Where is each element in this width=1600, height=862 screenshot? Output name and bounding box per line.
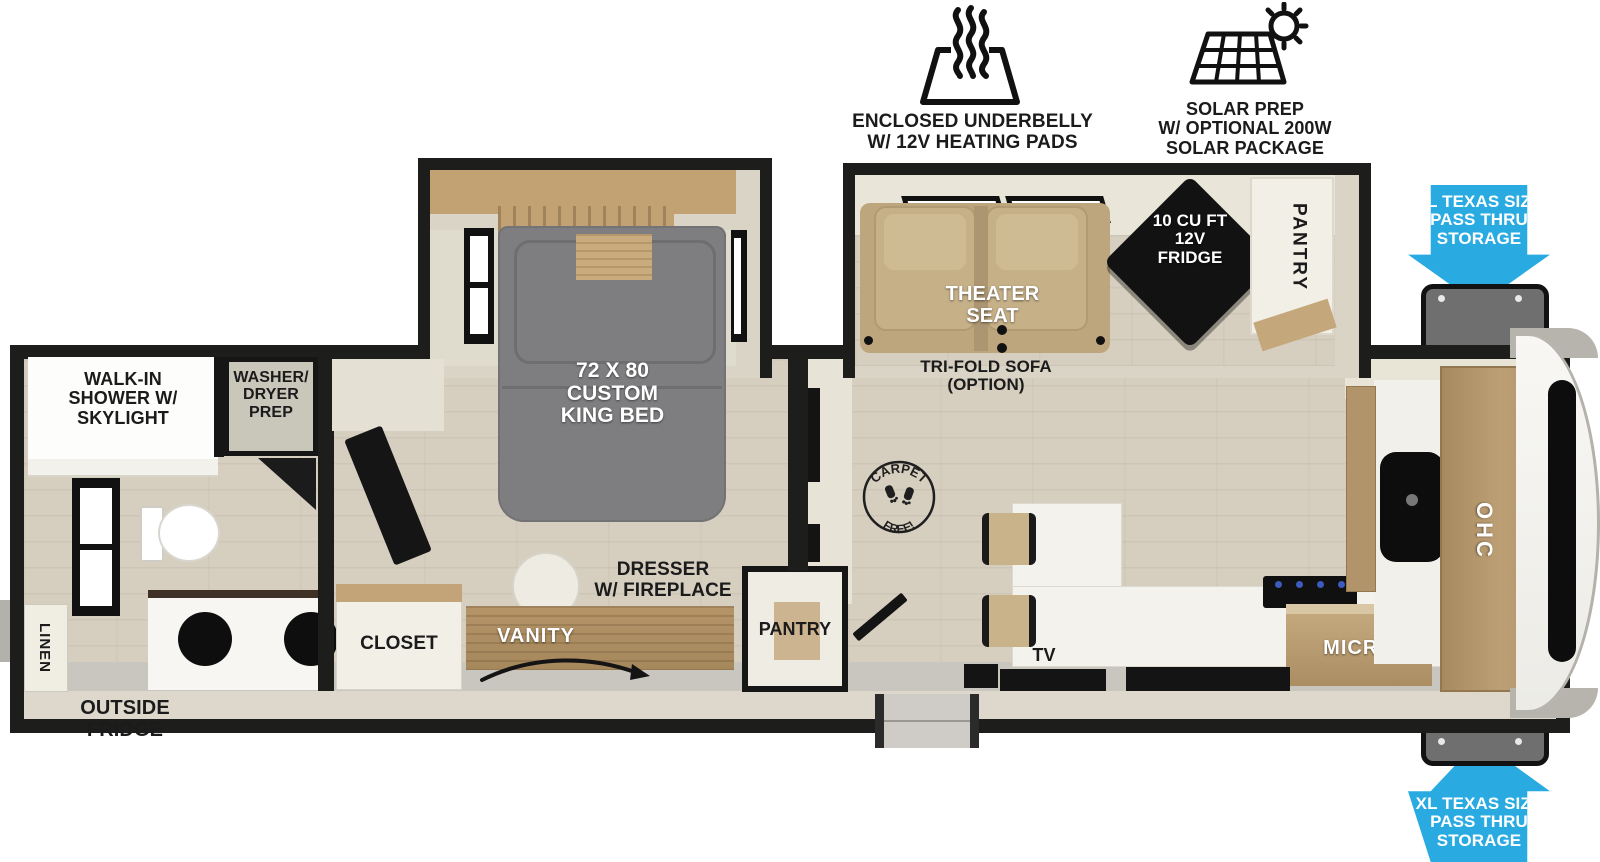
- storage-bottom-line3: STORAGE: [1408, 832, 1550, 850]
- carpet-badge-top-text: CARPET: [867, 461, 930, 486]
- front-cap-window: [1548, 380, 1576, 662]
- bed-label-line3: KING BED: [520, 405, 705, 428]
- hall-pantry-label: PANTRY: [748, 620, 842, 639]
- bedroom-window-right: [731, 230, 747, 342]
- heat-waves-icon: [905, 4, 1035, 108]
- footprints-icon: [884, 484, 916, 506]
- bottom-wall-window-1: [1000, 669, 1106, 691]
- storage-top-line2: PASS THRU: [1408, 211, 1550, 229]
- wall-mounted-tv: [808, 388, 820, 482]
- toilet-bowl: [158, 504, 220, 562]
- bed-blanket: [576, 234, 652, 280]
- shower-washer-divider-wall: [214, 357, 224, 457]
- king-bed-label: 72 X 80 CUSTOM KING BED: [520, 360, 705, 428]
- kitchen-sink: [1380, 452, 1444, 562]
- storage-top-line3: STORAGE: [1408, 230, 1550, 248]
- vanity-label: VANITY: [476, 626, 596, 648]
- storage-bottom-line2: PASS THRU: [1408, 813, 1550, 831]
- svg-text:FREE!: FREE!: [881, 518, 918, 536]
- sofa-label-line1: TRI-FOLD SOFA: [896, 358, 1076, 376]
- dresser-fireplace-label: DRESSER W/ FIREPLACE: [568, 560, 758, 601]
- bed-label-line1: 72 X 80: [520, 360, 705, 383]
- closet: CLOSET: [336, 584, 462, 690]
- theater-seat-label: THEATER SEAT: [900, 284, 1085, 327]
- underbelly-caption-line1: ENCLOSED UNDERBELLY: [845, 112, 1100, 133]
- theater-label-line1: THEATER: [900, 284, 1085, 306]
- solar-caption-line3: SOLAR PACKAGE: [1140, 139, 1350, 158]
- ohc-label: OHC: [1472, 466, 1496, 596]
- sofa-option-label: TRI-FOLD SOFA (OPTION): [896, 358, 1076, 395]
- hall-pantry: PANTRY: [742, 566, 848, 692]
- underbelly-caption-line2: W/ 12V HEATING PADS: [845, 133, 1100, 154]
- slide-pantry-label: PANTRY: [1288, 192, 1309, 302]
- storage-top-line1: XL TEXAS SIZE: [1408, 193, 1550, 211]
- outside-fridge-line2: FRIDGE: [55, 720, 195, 742]
- washer-dryer-prep: WASHER/ DRYER PREP: [224, 357, 318, 456]
- solar-panel-sun-icon: [1178, 2, 1318, 102]
- washer-label-line3: PREP: [229, 404, 313, 421]
- sofa-label-line2: (OPTION): [896, 376, 1076, 394]
- shower-label-line2: SHOWER W/: [38, 389, 208, 408]
- wall-cabinet: [808, 524, 820, 562]
- bedroom-corner-wall-face: [332, 359, 444, 431]
- solar-caption: SOLAR PREP W/ OPTIONAL 200W SOLAR PACKAG…: [1140, 100, 1350, 158]
- front-cap: [1516, 336, 1600, 710]
- rv-floorplan-diagram: ENCLOSED UNDERBELLY W/ 12V HEATING PADS …: [0, 0, 1600, 862]
- underbelly-caption: ENCLOSED UNDERBELLY W/ 12V HEATING PADS: [845, 112, 1100, 153]
- carpet-free-badge: CARPET FREE!: [860, 458, 938, 536]
- theater-label-line2: SEAT: [900, 306, 1085, 328]
- dresser-label-line2: W/ FIREPLACE: [568, 581, 758, 602]
- linen-cabinet: LINEN: [24, 604, 68, 692]
- bedroom-window-left: [464, 228, 494, 344]
- entry-steps: [875, 694, 979, 748]
- bath-vanity-counter: [148, 598, 320, 690]
- bed-label-line2: CUSTOM: [520, 383, 705, 406]
- bottom-wall-window-2: [1126, 667, 1290, 691]
- solar-caption-line1: SOLAR PREP: [1140, 100, 1350, 119]
- washer-label-line1: WASHER/: [229, 369, 313, 386]
- closet-label: CLOSET: [336, 634, 462, 655]
- shower-label-line1: WALK-IN: [38, 370, 208, 389]
- theater-seat: [860, 203, 1110, 353]
- door-swing-icon: [474, 648, 654, 688]
- bath-sink-left: [178, 612, 232, 666]
- outside-fridge-label: OUTSIDE FRIDGE: [55, 698, 195, 741]
- washer-label-line2: DRYER: [229, 386, 313, 403]
- outside-fridge-line1: OUTSIDE: [55, 698, 195, 720]
- tv-label: TV: [1014, 646, 1074, 665]
- shower-ledge: [28, 459, 218, 477]
- bar-stool-2: [982, 595, 1036, 647]
- dresser-label-line1: DRESSER: [568, 560, 758, 581]
- svg-text:CARPET: CARPET: [867, 461, 930, 486]
- linen-label: LINEN: [36, 613, 52, 683]
- solar-caption-line2: W/ OPTIONAL 200W: [1140, 119, 1350, 138]
- bathroom-window: [72, 478, 120, 616]
- shower-label-line3: SKYLIGHT: [38, 409, 208, 428]
- bottom-wall-window-small: [964, 664, 998, 688]
- bedroom-living-wall: [788, 359, 808, 571]
- shower-label: WALK-IN SHOWER W/ SKYLIGHT: [38, 370, 208, 428]
- storage-bottom-line1: XL TEXAS SIZE: [1408, 795, 1550, 813]
- tall-cabinet: [1346, 386, 1376, 592]
- bar-stool-1: [982, 513, 1036, 565]
- carpet-badge-bottom-text: FREE!: [881, 518, 918, 536]
